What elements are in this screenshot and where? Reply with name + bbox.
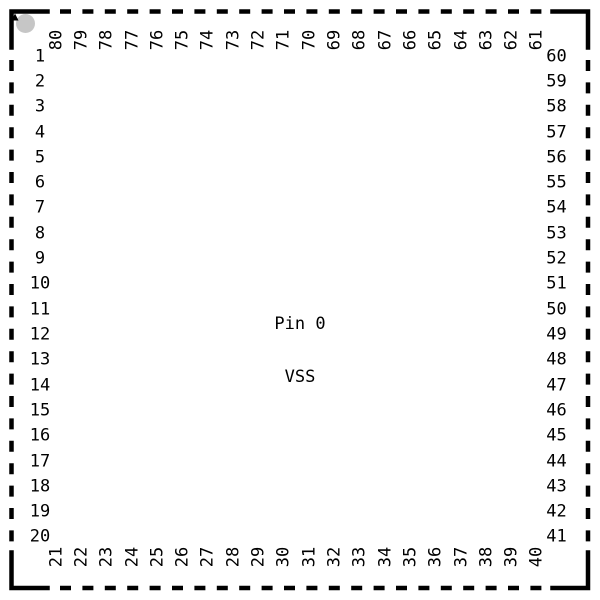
pin-label-right-48: 48 <box>546 352 566 369</box>
pin-label-bottom-26: 26 <box>175 546 192 566</box>
pin-label-top-61: 61 <box>529 29 546 49</box>
pin-label-top-80: 80 <box>48 29 65 49</box>
pin-label-bottom-24: 24 <box>124 546 141 566</box>
pin-label-bottom-38: 38 <box>478 546 495 566</box>
pin-label-bottom-32: 32 <box>327 546 344 566</box>
pin-label-right-57: 57 <box>546 124 566 141</box>
pin-label-bottom-36: 36 <box>428 546 445 566</box>
pin-label-left-19: 19 <box>30 504 50 521</box>
pin-label-right-53: 53 <box>546 225 566 242</box>
pin-label-bottom-33: 33 <box>352 546 369 566</box>
pin-label-right-52: 52 <box>546 251 566 268</box>
pin-label-top-78: 78 <box>99 29 116 49</box>
pin-label-top-75: 75 <box>175 29 192 49</box>
pin-label-right-41: 41 <box>546 529 566 546</box>
pin-label-left-20: 20 <box>30 529 50 546</box>
pin-label-top-67: 67 <box>377 29 394 49</box>
center-label-signal-name: VSS <box>274 369 325 387</box>
pin-label-left-7: 7 <box>35 200 45 217</box>
pin-label-left-6: 6 <box>35 175 45 192</box>
pin-label-bottom-28: 28 <box>225 546 242 566</box>
pin-label-left-18: 18 <box>30 478 50 495</box>
center-label: Pin 0 VSS <box>274 281 325 421</box>
pin-label-left-12: 12 <box>30 327 50 344</box>
center-label-pin-name: Pin 0 <box>274 316 325 334</box>
pin-label-right-42: 42 <box>546 504 566 521</box>
pin-label-top-62: 62 <box>504 29 521 49</box>
pin-label-bottom-27: 27 <box>200 546 217 566</box>
pin-label-left-2: 2 <box>35 73 45 90</box>
pin-label-bottom-29: 29 <box>251 546 268 566</box>
pin-label-left-16: 16 <box>30 428 50 445</box>
pin-label-top-77: 77 <box>124 29 141 49</box>
pin-label-right-49: 49 <box>546 327 566 344</box>
pin-label-bottom-23: 23 <box>99 546 116 566</box>
pin-label-bottom-39: 39 <box>504 546 521 566</box>
pin-label-left-3: 3 <box>35 99 45 116</box>
pin1-indicator-dot <box>16 14 35 33</box>
pin-label-top-63: 63 <box>478 29 495 49</box>
pin-label-left-14: 14 <box>30 377 50 394</box>
pin-label-right-47: 47 <box>546 377 566 394</box>
pin-label-left-15: 15 <box>30 402 50 419</box>
pin-label-bottom-30: 30 <box>276 546 293 566</box>
pin-label-bottom-25: 25 <box>149 546 166 566</box>
pin-label-right-45: 45 <box>546 428 566 445</box>
pin-label-top-65: 65 <box>428 29 445 49</box>
pin-label-right-58: 58 <box>546 99 566 116</box>
pin-label-bottom-40: 40 <box>529 546 546 566</box>
pin-label-top-66: 66 <box>402 29 419 49</box>
pin-label-top-74: 74 <box>200 29 217 49</box>
pin-label-left-17: 17 <box>30 453 50 470</box>
pin-label-left-8: 8 <box>35 225 45 242</box>
pin-label-top-64: 64 <box>453 29 470 49</box>
corner-bottom-right <box>553 553 589 589</box>
pin-label-bottom-22: 22 <box>73 546 90 566</box>
pin-label-right-56: 56 <box>546 149 566 166</box>
pin-label-right-59: 59 <box>546 73 566 90</box>
pin-label-top-71: 71 <box>276 29 293 49</box>
pin-label-right-60: 60 <box>546 48 566 65</box>
pin-label-right-44: 44 <box>546 453 566 470</box>
pin-label-right-55: 55 <box>546 175 566 192</box>
pin-label-top-79: 79 <box>73 29 90 49</box>
pin-label-left-13: 13 <box>30 352 50 369</box>
pin-label-bottom-21: 21 <box>48 546 65 566</box>
pin-label-bottom-35: 35 <box>402 546 419 566</box>
pin-label-right-46: 46 <box>546 402 566 419</box>
pin-label-left-1: 1 <box>35 48 45 65</box>
pin-label-right-50: 50 <box>546 301 566 318</box>
pin-label-right-51: 51 <box>546 276 566 293</box>
pin-label-top-76: 76 <box>149 29 166 49</box>
pin-label-right-54: 54 <box>546 200 566 217</box>
pin-label-left-9: 9 <box>35 251 45 268</box>
pin-label-left-5: 5 <box>35 149 45 166</box>
pin-label-top-73: 73 <box>225 29 242 49</box>
pin-label-left-11: 11 <box>30 301 50 318</box>
pin-label-top-70: 70 <box>301 29 318 49</box>
pin-label-left-4: 4 <box>35 124 45 141</box>
pin-label-left-10: 10 <box>30 276 50 293</box>
pin-label-top-68: 68 <box>352 29 369 49</box>
pinout-diagram: Pin 0 VSS 123456789101112131415161718192… <box>0 0 600 600</box>
pin-label-bottom-37: 37 <box>453 546 470 566</box>
pin-label-right-43: 43 <box>546 478 566 495</box>
pin-label-top-72: 72 <box>251 29 268 49</box>
pin-label-bottom-31: 31 <box>301 546 318 566</box>
corner-top-right <box>553 12 589 48</box>
pin-label-bottom-34: 34 <box>377 546 394 566</box>
pin-label-top-69: 69 <box>327 29 344 49</box>
corner-bottom-left <box>12 553 48 589</box>
